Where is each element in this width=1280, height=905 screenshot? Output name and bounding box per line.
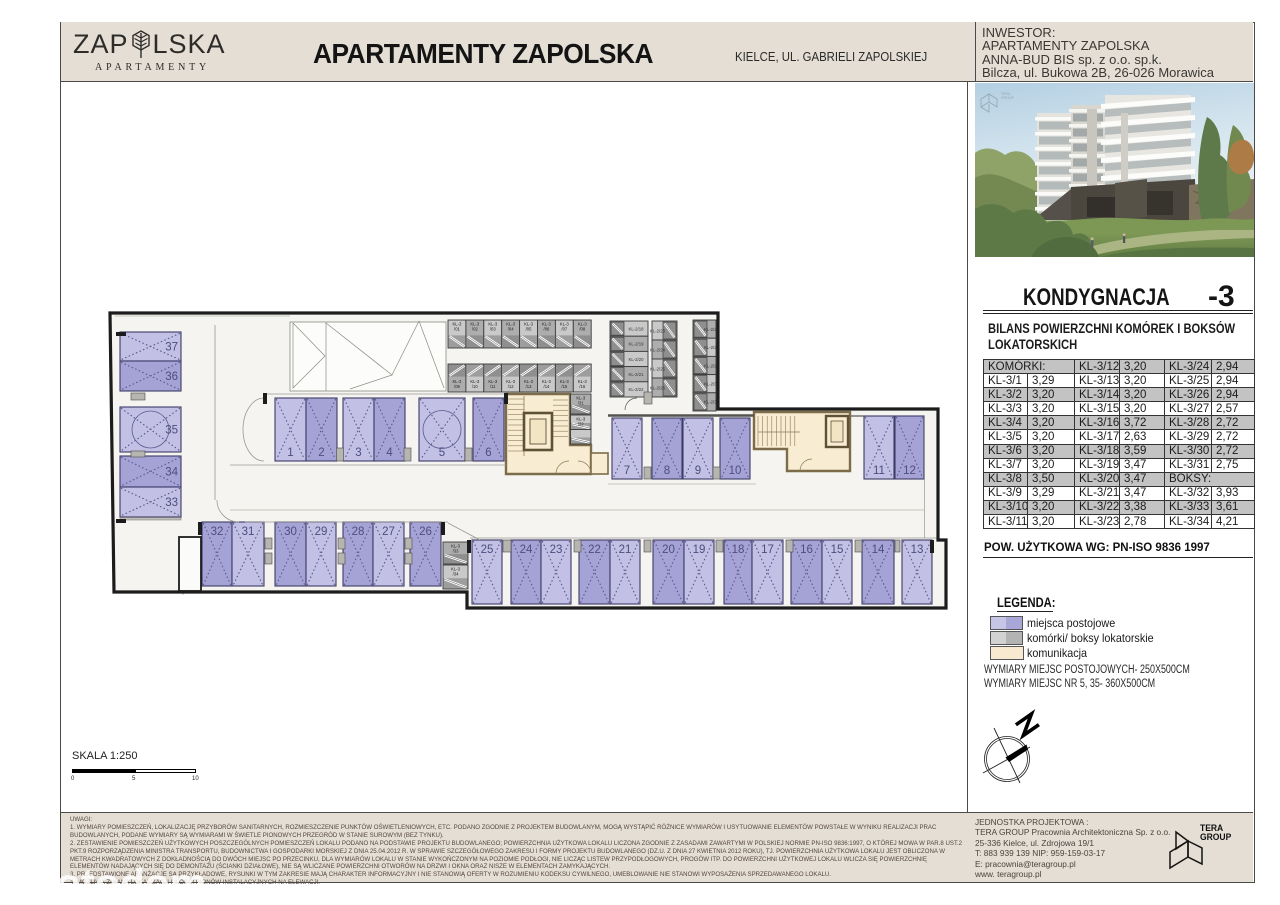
svg-text:/34: /34 bbox=[453, 572, 459, 577]
svg-text:9: 9 bbox=[695, 465, 701, 477]
svg-text:37: 37 bbox=[165, 342, 178, 354]
svg-text:31: 31 bbox=[242, 526, 255, 538]
svg-text:6: 6 bbox=[485, 447, 491, 459]
svg-text:14: 14 bbox=[872, 544, 885, 556]
svg-text:2: 2 bbox=[318, 447, 324, 459]
svg-text:1: 1 bbox=[287, 447, 293, 459]
svg-text:19: 19 bbox=[693, 544, 706, 556]
svg-text:5: 5 bbox=[439, 447, 445, 459]
svg-text:/06: /06 bbox=[544, 327, 550, 332]
svg-text:30: 30 bbox=[284, 526, 297, 538]
svg-text:20: 20 bbox=[662, 544, 675, 556]
svg-text:22: 22 bbox=[588, 544, 601, 556]
svg-text:KL-2/24: KL-2/24 bbox=[650, 347, 666, 352]
svg-text:/07: /07 bbox=[561, 327, 567, 332]
svg-text:/09: /09 bbox=[454, 384, 460, 389]
svg-text:24: 24 bbox=[520, 544, 533, 556]
svg-text:/14: /14 bbox=[544, 384, 550, 389]
svg-text:3: 3 bbox=[355, 447, 361, 459]
svg-text:/12: /12 bbox=[508, 384, 514, 389]
svg-text:/08: /08 bbox=[579, 327, 585, 332]
svg-text:/03: /03 bbox=[490, 327, 496, 332]
svg-text:18: 18 bbox=[732, 544, 745, 556]
svg-text:4: 4 bbox=[386, 447, 393, 459]
svg-text:17: 17 bbox=[761, 544, 774, 556]
svg-text:/10: /10 bbox=[472, 384, 478, 389]
svg-text:KL-2/25: KL-2/25 bbox=[650, 366, 666, 371]
svg-text:/01: /01 bbox=[454, 327, 460, 332]
svg-text:35: 35 bbox=[165, 425, 178, 437]
svg-text:16: 16 bbox=[800, 544, 813, 556]
svg-text:23: 23 bbox=[550, 544, 563, 556]
svg-text:GROUP: GROUP bbox=[1001, 96, 1015, 100]
svg-text:/02: /02 bbox=[472, 327, 478, 332]
svg-text:28: 28 bbox=[352, 526, 365, 538]
svg-text:/15: /15 bbox=[561, 384, 567, 389]
svg-text:KL-2/22: KL-2/22 bbox=[628, 387, 644, 392]
svg-text:KL-2/18: KL-2/18 bbox=[628, 326, 644, 331]
svg-text:7: 7 bbox=[624, 465, 630, 477]
svg-text:/16: /16 bbox=[579, 384, 585, 389]
svg-text:25: 25 bbox=[481, 544, 494, 556]
svg-text:/32: /32 bbox=[578, 422, 584, 427]
svg-text:/04: /04 bbox=[508, 327, 514, 332]
svg-text:KL-2/20: KL-2/20 bbox=[628, 357, 644, 362]
svg-text:21: 21 bbox=[619, 544, 632, 556]
svg-text:32: 32 bbox=[211, 526, 224, 538]
svg-text:13: 13 bbox=[911, 544, 924, 556]
svg-text:/11: /11 bbox=[490, 384, 496, 389]
svg-text:GROUP: GROUP bbox=[1200, 832, 1231, 843]
svg-text:34: 34 bbox=[165, 467, 178, 479]
svg-text:10: 10 bbox=[729, 465, 742, 477]
svg-text:/05: /05 bbox=[526, 327, 532, 332]
svg-text:15: 15 bbox=[831, 544, 844, 556]
svg-text:8: 8 bbox=[664, 465, 670, 477]
svg-text:/33: /33 bbox=[453, 549, 459, 554]
svg-text:29: 29 bbox=[315, 526, 328, 538]
svg-text:12: 12 bbox=[903, 465, 916, 477]
svg-text:KL-2/23: KL-2/23 bbox=[650, 328, 666, 333]
svg-text:36: 36 bbox=[165, 371, 178, 383]
svg-text:/31: /31 bbox=[578, 401, 584, 406]
svg-text:KL-2/19: KL-2/19 bbox=[628, 342, 644, 347]
svg-text:26: 26 bbox=[419, 526, 432, 538]
svg-text:KL-2/26: KL-2/26 bbox=[650, 385, 666, 390]
svg-text:/13: /13 bbox=[526, 384, 532, 389]
svg-text:KL-2/21: KL-2/21 bbox=[628, 372, 644, 377]
svg-text:33: 33 bbox=[165, 497, 178, 509]
svg-text:11: 11 bbox=[873, 465, 885, 477]
svg-text:27: 27 bbox=[382, 526, 395, 538]
